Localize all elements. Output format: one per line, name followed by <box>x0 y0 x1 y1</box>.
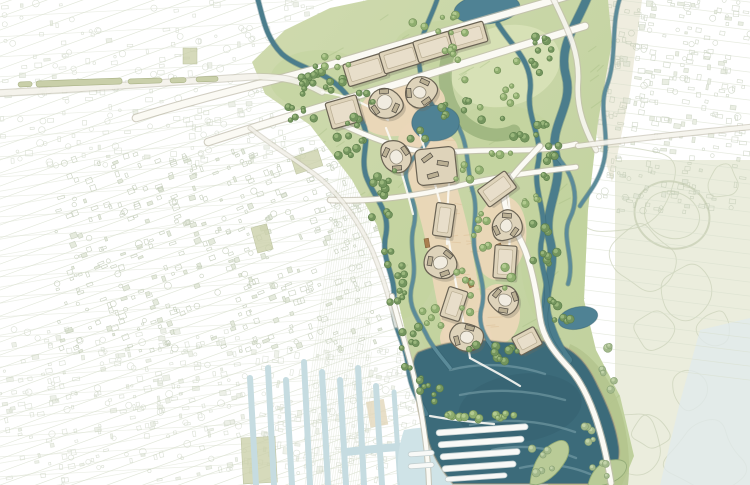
tree-highlight <box>445 413 447 415</box>
tree-highlight <box>408 136 412 140</box>
city-block <box>246 102 252 106</box>
tree-highlight <box>432 305 436 309</box>
tree-highlight <box>441 15 443 17</box>
tree-highlight <box>484 218 488 222</box>
plaza-hatch <box>451 242 460 243</box>
tree-highlight <box>422 136 426 140</box>
tree-highlight <box>514 93 517 96</box>
tree-highlight <box>427 384 429 386</box>
tree-highlight <box>411 331 414 334</box>
tree-highlight <box>344 148 348 152</box>
city-block <box>685 32 688 34</box>
tree-highlight <box>472 234 474 236</box>
tree-highlight <box>470 281 473 284</box>
tree-highlight <box>439 323 442 326</box>
tree-highlight <box>493 343 497 347</box>
tree-highlight <box>334 134 338 138</box>
tree-highlight <box>340 79 344 83</box>
tree-highlight <box>552 153 556 157</box>
tree-highlight <box>495 68 498 71</box>
tree-highlight <box>290 106 293 109</box>
city-block <box>293 2 298 7</box>
city-block <box>128 352 131 357</box>
tree-highlight <box>611 378 614 381</box>
tree-highlight <box>480 245 484 249</box>
city-block <box>707 65 710 70</box>
tree-highlight <box>541 453 544 456</box>
tree-highlight <box>322 54 325 57</box>
city-block <box>677 2 684 6</box>
tree-highlight <box>432 393 434 395</box>
tree-highlight <box>497 151 501 155</box>
city-block <box>125 347 129 351</box>
tree-highlight <box>533 41 535 43</box>
city-block <box>10 406 15 410</box>
tree-highlight <box>399 263 402 266</box>
city-block <box>145 291 150 296</box>
tree-highlight <box>508 100 511 103</box>
tree-highlight <box>335 152 339 156</box>
tree-highlight <box>395 298 398 301</box>
tree-highlight <box>567 316 571 320</box>
city-block <box>264 145 270 149</box>
tree-highlight <box>501 117 503 119</box>
masterplan-canvas <box>0 0 750 485</box>
tree-highlight <box>456 57 459 60</box>
courtyard <box>499 294 512 306</box>
tree-highlight <box>422 385 424 387</box>
tree-highlight <box>530 221 534 225</box>
median-strip <box>18 82 32 87</box>
city-block <box>699 169 703 172</box>
tree-highlight <box>364 91 367 94</box>
city-block <box>661 148 667 151</box>
tree-highlight <box>470 411 474 415</box>
tree-highlight <box>542 225 546 229</box>
rect-building-group <box>414 146 460 189</box>
tree-highlight <box>476 167 480 171</box>
tree-highlight <box>473 342 477 346</box>
city-block <box>650 116 655 121</box>
city-block <box>615 127 620 131</box>
tree-highlight <box>462 30 466 34</box>
tree-highlight <box>409 340 412 343</box>
tree-highlight <box>512 413 515 416</box>
city-block <box>692 119 696 124</box>
tree-highlight <box>370 180 374 184</box>
masterplan-image <box>0 0 750 485</box>
roof-rect <box>502 213 511 218</box>
tree-highlight <box>543 36 546 39</box>
tree-highlight <box>466 99 469 102</box>
city-block <box>694 190 700 194</box>
city-block <box>173 328 180 334</box>
city-block <box>20 4 23 7</box>
tree-highlight <box>417 388 421 392</box>
tree-highlight <box>415 324 419 328</box>
city-block <box>684 68 689 73</box>
tree-highlight <box>422 24 426 28</box>
city-block <box>692 137 696 143</box>
tree-highlight <box>591 438 593 440</box>
city-block <box>197 473 200 476</box>
tree-highlight <box>302 86 305 89</box>
tree-highlight <box>302 109 304 111</box>
tree-highlight <box>393 169 395 171</box>
city-block <box>730 105 736 110</box>
city-block <box>295 443 300 446</box>
roof-rect <box>379 89 388 94</box>
courtyard <box>390 150 403 164</box>
tree-highlight <box>418 128 422 132</box>
tree-highlight <box>586 439 590 443</box>
tree-highlight <box>608 387 612 391</box>
tree-highlight <box>467 176 471 180</box>
courtyard <box>433 256 447 269</box>
tree-highlight <box>457 414 461 418</box>
tree-highlight <box>460 306 462 308</box>
courtyard <box>377 95 392 110</box>
city-block <box>165 398 170 403</box>
tree-highlight <box>442 115 445 118</box>
city-block <box>737 157 741 161</box>
tree-highlight <box>536 48 539 51</box>
tree-highlight <box>311 115 315 119</box>
tree-highlight <box>467 309 471 313</box>
tree-highlight <box>503 286 505 288</box>
tree-highlight <box>545 447 549 451</box>
city-block <box>101 367 106 372</box>
tree-highlight <box>382 249 385 252</box>
city-block <box>682 179 688 184</box>
tree-highlight <box>425 321 428 324</box>
tree-highlight <box>355 123 358 126</box>
city-block <box>12 342 17 347</box>
tree-highlight <box>400 346 403 349</box>
tree-highlight <box>603 461 607 465</box>
tree-highlight <box>436 29 439 32</box>
tree-highlight <box>541 251 544 254</box>
city-block <box>691 3 694 7</box>
city-block <box>297 410 302 417</box>
tree-highlight <box>548 56 551 59</box>
tree-highlight <box>533 469 537 473</box>
tree-highlight <box>462 108 465 111</box>
tree-highlight <box>396 273 399 276</box>
city-block <box>670 149 676 153</box>
city-block <box>71 266 74 269</box>
city-block <box>706 85 709 90</box>
city-block <box>369 370 374 377</box>
city-block <box>664 141 670 145</box>
tree-highlight <box>493 412 497 416</box>
city-block <box>192 386 199 391</box>
city-block <box>646 1 653 7</box>
tree-highlight <box>289 118 291 120</box>
tree-highlight <box>542 173 545 176</box>
plaza-hatch <box>488 317 503 318</box>
city-block <box>44 58 51 61</box>
tree-highlight <box>509 151 511 153</box>
city-block <box>98 145 100 149</box>
city-block <box>63 371 66 374</box>
city-block <box>56 335 61 340</box>
tree-highlight <box>448 48 452 52</box>
tree-highlight <box>360 139 363 142</box>
city-block <box>179 414 182 418</box>
city-block <box>738 22 743 26</box>
tree-highlight <box>389 249 392 252</box>
city-block <box>112 333 115 336</box>
tree-highlight <box>479 212 482 215</box>
city-block <box>224 420 230 425</box>
tree-highlight <box>310 81 313 84</box>
city-block <box>707 79 711 85</box>
tree-highlight <box>346 133 349 136</box>
courtyard <box>460 331 473 343</box>
tree-highlight <box>322 64 326 68</box>
tree-highlight <box>429 315 432 318</box>
city-block <box>227 351 233 356</box>
tree-highlight <box>560 315 564 319</box>
tree-highlight <box>432 399 435 402</box>
tree-highlight <box>388 299 391 302</box>
tree-highlight <box>549 47 552 50</box>
tree-highlight <box>453 46 455 48</box>
tree-highlight <box>537 70 540 73</box>
tree-highlight <box>518 132 521 135</box>
tree-highlight <box>550 466 553 469</box>
tree-highlight <box>462 162 465 165</box>
city-block <box>316 428 319 434</box>
tree-highlight <box>357 91 360 94</box>
tree-highlight <box>534 133 537 136</box>
city-block <box>227 462 233 468</box>
tree-highlight <box>590 465 593 468</box>
tree-highlight <box>369 214 373 218</box>
tree-highlight <box>454 270 457 273</box>
city-block <box>110 408 117 413</box>
tree-highlight <box>300 82 303 85</box>
city-block <box>252 350 257 355</box>
rect-building <box>414 146 458 186</box>
tree-highlight <box>490 151 493 154</box>
tree-highlight <box>387 179 390 182</box>
city-block <box>274 351 279 358</box>
city-block <box>374 368 377 372</box>
city-block <box>412 401 415 404</box>
tree-highlight <box>460 268 463 271</box>
tree-highlight <box>328 79 332 83</box>
tree-highlight <box>349 153 352 156</box>
tree-highlight <box>545 123 548 126</box>
tree-highlight <box>400 295 403 298</box>
city-block <box>675 51 679 56</box>
city-block <box>38 453 41 457</box>
city-block <box>662 79 669 85</box>
tree-highlight <box>556 143 560 147</box>
city-block <box>216 341 219 346</box>
tree-highlight <box>402 364 405 367</box>
tree-highlight <box>305 74 309 78</box>
city-block <box>126 385 129 389</box>
tree-highlight <box>454 177 456 179</box>
tree-highlight <box>417 378 421 382</box>
city-block <box>639 24 644 30</box>
tree-highlight <box>478 105 481 108</box>
tree-highlight <box>554 249 558 253</box>
city-block <box>634 101 637 106</box>
tree-highlight <box>299 75 303 79</box>
tree-highlight <box>324 85 327 88</box>
tree-highlight <box>605 474 608 477</box>
tree-highlight <box>443 48 446 51</box>
city-block <box>80 463 85 466</box>
tree-highlight <box>531 258 535 262</box>
city-block <box>674 123 681 128</box>
city-block <box>32 354 39 359</box>
city-block <box>221 340 226 345</box>
city-block <box>674 72 677 76</box>
city-block <box>290 311 294 315</box>
city-block <box>176 477 181 480</box>
tree-highlight <box>400 329 404 333</box>
median-strip <box>128 78 162 84</box>
tree-highlight <box>529 59 532 62</box>
median-strip <box>170 77 186 83</box>
city-block <box>304 12 309 17</box>
tree-highlight <box>600 367 603 370</box>
tree-highlight <box>467 347 470 350</box>
tree-highlight <box>386 212 390 216</box>
city-block <box>219 390 226 395</box>
city-block <box>2 402 8 406</box>
city-block <box>232 396 237 400</box>
city-block <box>35 461 39 464</box>
city-block <box>106 326 112 332</box>
tree-highlight <box>462 414 466 418</box>
city-block <box>81 355 84 360</box>
city-block <box>160 329 166 334</box>
median-strip <box>196 76 218 82</box>
tree-highlight <box>544 158 548 162</box>
city-block <box>654 69 661 73</box>
tree-highlight <box>479 117 483 121</box>
tree-highlight <box>552 300 555 303</box>
tree-highlight <box>400 280 404 284</box>
city-block <box>158 336 165 341</box>
city-block <box>235 458 238 462</box>
tree-highlight <box>353 145 357 149</box>
tree-highlight <box>403 291 405 293</box>
city-block <box>650 14 656 18</box>
city-block <box>157 396 160 401</box>
tree-highlight <box>523 201 527 205</box>
city-block <box>686 115 691 119</box>
tree-highlight <box>503 411 506 414</box>
tree-highlight <box>601 371 604 374</box>
tree-highlight <box>510 84 512 86</box>
tree-highlight <box>313 64 316 67</box>
tree-highlight <box>515 349 517 351</box>
city-block <box>617 209 620 213</box>
tree-highlight <box>463 77 466 80</box>
tree-highlight <box>380 180 384 184</box>
tree-highlight <box>510 133 514 137</box>
tree-highlight <box>476 217 479 220</box>
city-block <box>50 443 54 447</box>
tree-highlight <box>385 262 388 265</box>
tree-highlight <box>398 289 401 292</box>
tree-highlight <box>607 344 610 347</box>
tree-highlight <box>413 341 416 344</box>
tree-highlight <box>301 92 304 95</box>
tree-highlight <box>532 34 536 38</box>
tree-highlight <box>529 446 533 450</box>
tree-highlight <box>514 58 518 62</box>
tree-highlight <box>437 385 441 389</box>
tree-highlight <box>504 88 507 91</box>
tree-highlight <box>501 94 505 98</box>
tree-highlight <box>582 424 586 428</box>
city-block <box>220 368 223 371</box>
city-block <box>317 354 319 358</box>
tree-highlight <box>420 309 423 312</box>
tree-highlight <box>346 122 348 124</box>
city-block <box>300 147 304 151</box>
tree-highlight <box>475 226 479 230</box>
tree-highlight <box>335 65 338 68</box>
tree-highlight <box>439 104 443 108</box>
tree-highlight <box>371 100 374 103</box>
city-block <box>196 376 200 381</box>
tree-highlight <box>378 191 380 193</box>
tree-highlight <box>336 56 338 58</box>
city-block <box>118 353 125 357</box>
tree-highlight <box>502 264 506 268</box>
city-block <box>216 158 220 161</box>
tree-highlight <box>506 347 510 351</box>
tree-highlight <box>451 52 454 55</box>
tree-highlight <box>534 122 538 126</box>
city-block <box>326 354 329 359</box>
city-block <box>7 377 14 382</box>
city-block <box>18 428 22 431</box>
city-block <box>188 351 193 357</box>
tree-highlight <box>351 114 355 118</box>
city-block <box>661 192 666 198</box>
city-block <box>617 61 620 66</box>
city-block <box>685 204 690 208</box>
tree-highlight <box>402 271 406 275</box>
tree-highlight <box>329 88 332 91</box>
tree-highlight <box>374 173 378 177</box>
city-block <box>116 354 119 358</box>
tree-highlight <box>463 278 466 281</box>
tree-highlight <box>293 115 296 118</box>
roof-rect <box>406 88 411 97</box>
tree-highlight <box>476 415 480 419</box>
tree-highlight <box>469 293 472 296</box>
tree-highlight <box>546 144 549 147</box>
tree-highlight <box>492 349 496 353</box>
city-block <box>178 379 183 384</box>
tree-highlight <box>452 16 454 18</box>
tree-highlight <box>410 19 414 23</box>
city-block <box>724 60 727 63</box>
city-block <box>376 375 382 379</box>
olive-patch <box>183 48 197 64</box>
